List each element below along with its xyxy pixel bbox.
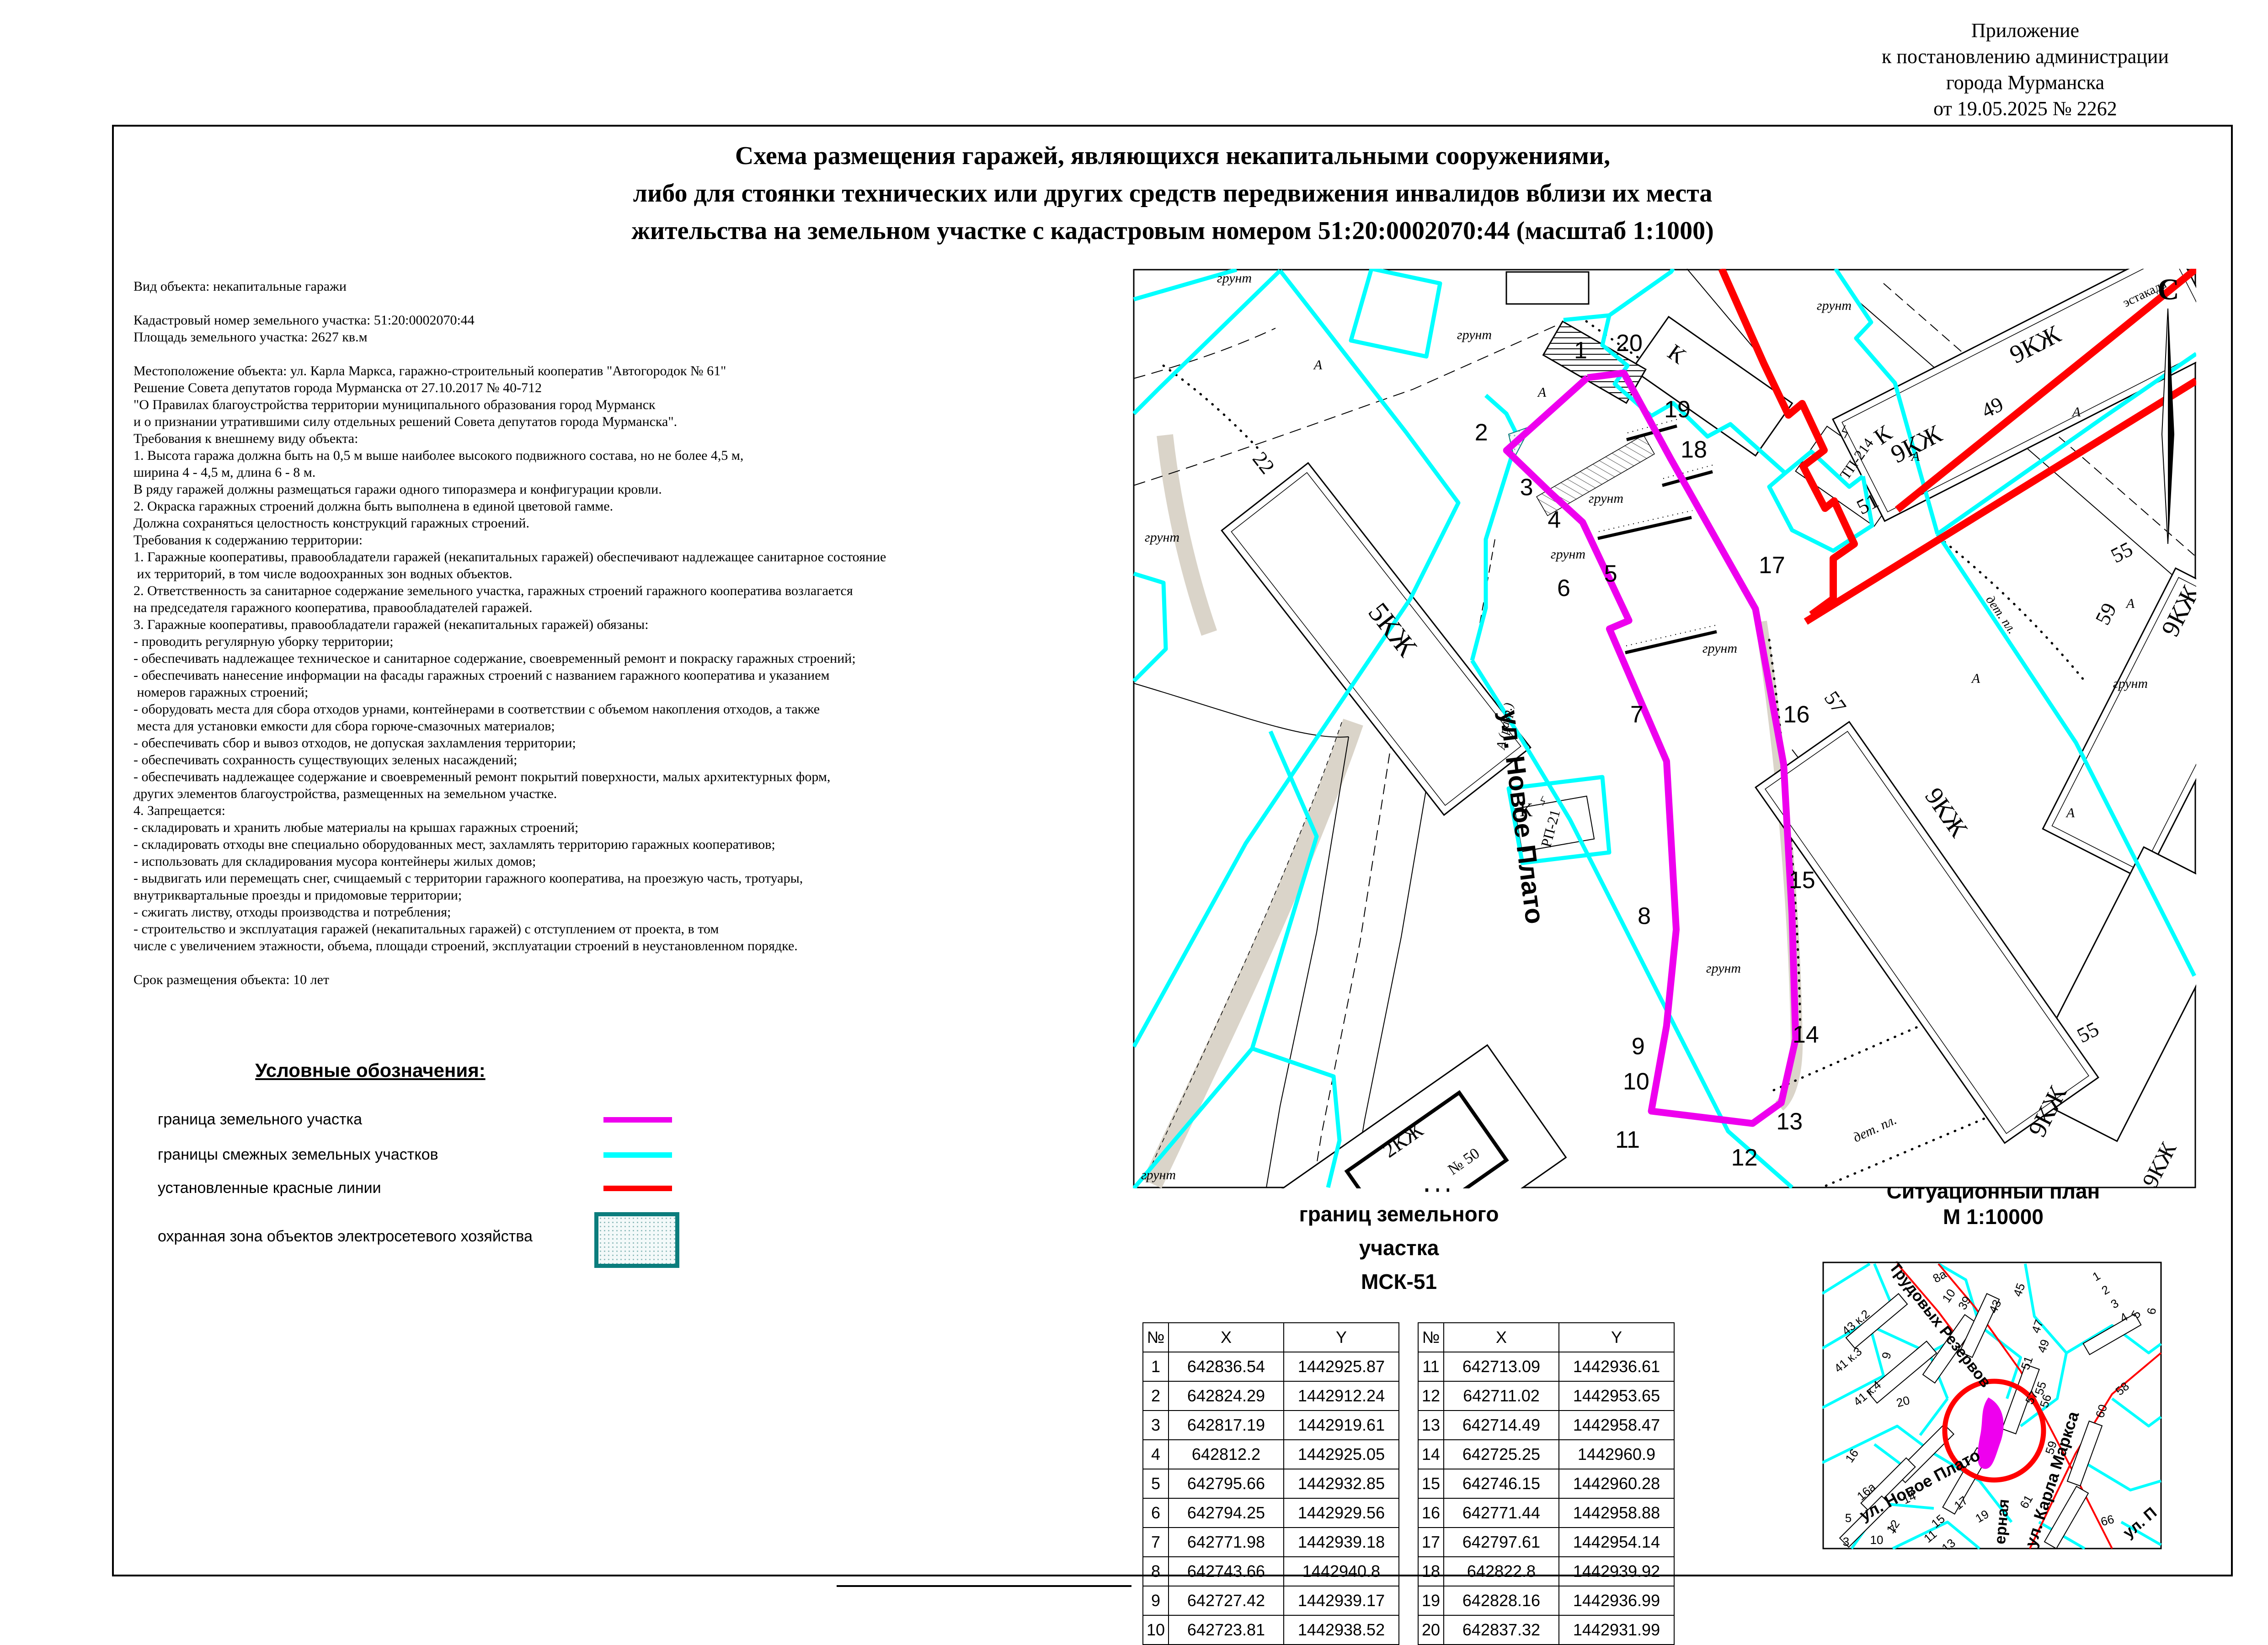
vertex-number: 13	[1776, 1108, 1803, 1135]
table-cell: 1442936.99	[1559, 1586, 1674, 1615]
map-label: грунт	[1217, 271, 1252, 286]
vertex-number: 15	[1789, 867, 1815, 894]
table-cell: 642723.81	[1169, 1615, 1284, 1645]
protection-zone-swatch	[594, 1212, 679, 1268]
info-line: на председателя гаражного кооператива, п…	[133, 599, 1121, 616]
table-cell: 20	[1418, 1615, 1444, 1645]
table-cell: 1442939.92	[1559, 1557, 1674, 1586]
info-line: 1. Высота гаража должна быть на 0,5 м вы…	[133, 447, 1121, 464]
info-line: 1. Гаражные кооперативы, правообладатели…	[133, 548, 1121, 565]
map-label: А	[1313, 357, 1323, 373]
info-line: Вид объекта: некапитальные гаражи	[133, 278, 1121, 295]
signature-line	[837, 1585, 1131, 1587]
table-cell: 14	[1418, 1440, 1444, 1469]
info-line: - сжигать листву, отходы производства и …	[133, 904, 1121, 921]
table-cell: 642711.02	[1444, 1381, 1559, 1411]
table-cell: 642771.44	[1444, 1498, 1559, 1528]
info-line: Срок размещения объекта: 10 лет	[133, 971, 1121, 988]
table-cell: 642746.15	[1444, 1469, 1559, 1498]
table-cell: 3	[1143, 1411, 1169, 1440]
table-cell: 1442912.24	[1284, 1381, 1399, 1411]
table-cell: 15	[1418, 1469, 1444, 1498]
column-header: №	[1143, 1323, 1169, 1352]
table-cell: 1442919.61	[1284, 1411, 1399, 1440]
info-line: - использовать для складирования мусора …	[133, 853, 1121, 870]
situational-plan-map: Трудовых Резервовул. Новое Платоул. Карл…	[1822, 1262, 2162, 1549]
table-cell: 1442958.47	[1559, 1411, 1674, 1440]
map-label: грунт	[1551, 547, 1585, 562]
map-label: грунт	[1817, 298, 1852, 313]
table-cell: 1442940.8	[1284, 1557, 1399, 1586]
table-cell: 642837.32	[1444, 1615, 1559, 1645]
vertex-number: 6	[1557, 575, 1570, 602]
info-line: - оборудовать места для сбора отходов ур…	[133, 701, 1121, 718]
table-cell: 1442960.28	[1559, 1469, 1674, 1498]
map-label: грунт	[2113, 676, 2148, 691]
info-line: Требования к содержанию территории:	[133, 532, 1121, 548]
vertex-number: 7	[1630, 701, 1644, 728]
info-line: "О Правилах благоустройства территории м…	[133, 396, 1121, 413]
vertex-number: 17	[1759, 552, 1785, 579]
info-line: - складировать отходы вне специально обо…	[133, 836, 1121, 853]
table-cell: 19	[1418, 1586, 1444, 1615]
vertex-number: 8	[1638, 903, 1651, 930]
page-title: Схема размещения гаражей, являющихся нек…	[137, 137, 2208, 250]
table-row: 10642723.811442938.52	[1143, 1615, 1399, 1645]
info-line: 4. Запрещается:	[133, 802, 1121, 819]
table-cell: 11	[1418, 1352, 1444, 1381]
table-row: 17642797.611442954.14	[1418, 1528, 1674, 1557]
table-cell: 1442929.56	[1284, 1498, 1399, 1528]
map-label: 3	[1843, 1535, 1849, 1549]
info-line: номеров гаражных строений;	[133, 684, 1121, 701]
map-label: грунт	[1702, 641, 1737, 656]
table-cell: 1442953.65	[1559, 1381, 1674, 1411]
table-cell: 642817.19	[1169, 1411, 1284, 1440]
appendix-line: от 19.05.2025 № 2262	[1783, 96, 2268, 122]
table-cell: 642828.16	[1444, 1586, 1559, 1615]
vertex-number: 18	[1681, 437, 1707, 463]
vertex-number: 9	[1632, 1033, 1645, 1060]
building-garage-row	[1506, 272, 1589, 304]
table-cell: 642771.98	[1169, 1528, 1284, 1557]
document-page: { "appendix": { "lines": ["Приложение","…	[0, 0, 2268, 1603]
vertex-number: 10	[1623, 1069, 1649, 1095]
vertex-number: 5	[1604, 561, 1617, 587]
table-cell: 1442938.52	[1284, 1615, 1399, 1645]
table-cell: 642714.49	[1444, 1411, 1559, 1440]
table-row: 13642714.491442958.47	[1418, 1411, 1674, 1440]
table-cell: 1442936.61	[1559, 1352, 1674, 1381]
table-row: 20642837.321442931.99	[1418, 1615, 1674, 1645]
info-line: В ряду гаражей должны размещаться гаражи…	[133, 481, 1121, 498]
map-label: А	[2071, 405, 2081, 420]
info-line: - обеспечивать сохранность существующих …	[133, 751, 1121, 768]
coordinates-title-line: участка	[1266, 1231, 1532, 1265]
info-line	[133, 954, 1121, 971]
info-line: - обеспечивать сбор и вывоз отходов, не …	[133, 735, 1121, 751]
table-row: 14642725.251442960.9	[1418, 1440, 1674, 1469]
table-cell: 17	[1418, 1528, 1444, 1557]
info-line: места для установки емкости для сбора го…	[133, 718, 1121, 735]
table-cell: 10	[1143, 1615, 1169, 1645]
table-row: 6642794.251442929.56	[1143, 1498, 1399, 1528]
table-cell: 9	[1143, 1586, 1169, 1615]
table-row: 8642743.661442940.8	[1143, 1557, 1399, 1586]
table-row: 19642828.161442936.99	[1418, 1586, 1674, 1615]
info-line: и о признании утратившими силу отдельных…	[133, 413, 1121, 430]
appendix-line: города Мурманска	[1783, 69, 2268, 96]
info-line: - обеспечивать надлежащее техническое и …	[133, 650, 1121, 667]
table-row: 18642822.81442939.92	[1418, 1557, 1674, 1586]
info-line: 2. Окраска гаражных строений должна быть…	[133, 498, 1121, 515]
table-row: 9642727.421442939.17	[1143, 1586, 1399, 1615]
table-cell: 4	[1143, 1440, 1169, 1469]
map-label: грунт	[1457, 327, 1492, 342]
table-row: 1642836.541442925.87	[1143, 1352, 1399, 1381]
legend-swatch-red-lines	[603, 1186, 672, 1191]
table-cell: 12	[1418, 1381, 1444, 1411]
main-map: грунтгрунтгрунтгрунтгрунтгрунтгрунтгрунт…	[1133, 269, 2196, 1188]
info-line: - обеспечивать надлежащее содержание и с…	[133, 768, 1121, 785]
info-line	[133, 346, 1121, 362]
info-line: внутриквартальные проезды и придомовые т…	[133, 887, 1121, 904]
info-line: - обеспечивать нанесение информации на ф…	[133, 667, 1121, 684]
table-cell: 13	[1418, 1411, 1444, 1440]
table-row: 3642817.191442919.61	[1143, 1411, 1399, 1440]
appendix-line: Приложение	[1783, 17, 2268, 43]
vertex-number: 2	[1475, 419, 1488, 446]
table-cell: 642822.8	[1444, 1557, 1559, 1586]
vertex-number: 1	[1574, 337, 1587, 364]
info-line: Решение Совета депутатов города Мурманск…	[133, 379, 1121, 396]
table-row: 7642771.981442939.18	[1143, 1528, 1399, 1557]
table-cell: 1442939.17	[1284, 1586, 1399, 1615]
table-cell: 1442939.18	[1284, 1528, 1399, 1557]
vertex-number: 11	[1615, 1127, 1640, 1153]
info-line: числе с увеличением этажности, объема, п…	[133, 937, 1121, 954]
table-row: 11642713.091442936.61	[1418, 1352, 1674, 1381]
map-label: А	[2125, 596, 2135, 611]
vertex-number: 3	[1520, 474, 1533, 501]
vertex-number: 4	[1548, 507, 1561, 533]
map-label: А	[1971, 671, 1980, 686]
table-cell: 642727.42	[1169, 1586, 1284, 1615]
title-line: Схема размещения гаражей, являющихся нек…	[137, 137, 2208, 175]
table-row: 16642771.441442958.88	[1418, 1498, 1674, 1528]
legend-swatch-parcel-boundary	[603, 1117, 672, 1123]
coordinates-table-1: №XY1642836.541442925.872642824.291442912…	[1142, 1322, 1399, 1645]
table-cell: 1442958.88	[1559, 1498, 1674, 1528]
info-line: 3. Гаражные кооперативы, правообладатели…	[133, 616, 1121, 633]
table-row: 12642711.021442953.65	[1418, 1381, 1674, 1411]
info-line: ширина 4 - 4,5 м, длина 6 - 8 м.	[133, 464, 1121, 481]
map-label: А	[2065, 805, 2075, 820]
map-label: грунт	[1706, 961, 1741, 976]
table-cell: 18	[1418, 1557, 1444, 1586]
object-info-text: Вид объекта: некапитальные гаражи Кадаст…	[133, 278, 1121, 988]
info-line: 2. Ответственность за санитарное содержа…	[133, 582, 1121, 599]
map-label: грунт	[1589, 491, 1623, 506]
map-label: грунт	[1141, 1167, 1176, 1182]
table-cell: 7	[1143, 1528, 1169, 1557]
info-line: Требования к внешнему виду объекта:	[133, 430, 1121, 447]
table-cell: 5	[1143, 1469, 1169, 1498]
table-cell: 1442954.14	[1559, 1528, 1674, 1557]
table-cell: 1442925.05	[1284, 1440, 1399, 1469]
column-header: Y	[1284, 1323, 1399, 1352]
info-line: их территорий, в том числе водоохранных …	[133, 565, 1121, 582]
table-cell: 1442925.87	[1284, 1352, 1399, 1381]
table-cell: 642725.25	[1444, 1440, 1559, 1469]
table-cell: 642795.66	[1169, 1469, 1284, 1498]
table-row: 5642795.661442932.85	[1143, 1469, 1399, 1498]
column-header: Y	[1559, 1323, 1674, 1352]
table-cell: 642836.54	[1169, 1352, 1284, 1381]
info-line: - проводить регулярную уборку территории…	[133, 633, 1121, 650]
table-cell: 642812.2	[1169, 1440, 1284, 1469]
title-line: жительства на земельном участке с кадаст…	[137, 212, 2208, 250]
vertex-number: 12	[1731, 1145, 1758, 1171]
table-row: 15642746.151442960.28	[1418, 1469, 1674, 1498]
appendix-line: к постановлению администрации	[1783, 43, 2268, 69]
table-cell: 642824.29	[1169, 1381, 1284, 1411]
info-line: - складировать и хранить любые материалы…	[133, 819, 1121, 836]
column-header: X	[1169, 1323, 1284, 1352]
info-line: Местоположение объекта: ул. Карла Маркса…	[133, 362, 1121, 379]
legend-label-adjacent-boundaries: границы смежных земельных участков	[158, 1146, 615, 1164]
vertex-number: 20	[1616, 330, 1643, 357]
table-cell: 642794.25	[1169, 1498, 1284, 1528]
coordinates-title-line: границ земельного	[1266, 1197, 1532, 1231]
legend-label-protection-zone: охранная зона объектов электросетевого х…	[158, 1228, 615, 1246]
vertex-number: 14	[1793, 1022, 1819, 1048]
info-line: - выдвигать или перемещать снег, счищаем…	[133, 870, 1121, 887]
info-line: других элементов благоустройства, размещ…	[133, 785, 1121, 802]
map-label: 5	[1845, 1511, 1852, 1525]
table-cell: 642797.61	[1444, 1528, 1559, 1557]
table-cell: 2	[1143, 1381, 1169, 1411]
info-line	[133, 295, 1121, 312]
appendix-block: Приложениек постановлению администрацииг…	[1783, 17, 2268, 122]
table-cell: 642743.66	[1169, 1557, 1284, 1586]
column-header: №	[1418, 1323, 1444, 1352]
legend-label-red-lines: установленные красные линии	[158, 1179, 615, 1197]
map-label: 10	[1870, 1533, 1884, 1547]
situational-plan-title-line: М 1:10000	[1856, 1204, 2130, 1230]
vertex-number: 19	[1664, 396, 1691, 423]
legend-title: Условные обозначения:	[197, 1059, 544, 1081]
info-line: Должна сохраняться целостность конструкц…	[133, 515, 1121, 532]
table-cell: 1442932.85	[1284, 1469, 1399, 1498]
legend-swatch-adjacent-boundaries	[603, 1152, 672, 1158]
table-cell: 8	[1143, 1557, 1169, 1586]
table-cell: 642713.09	[1444, 1352, 1559, 1381]
info-line: Площадь земельного участка: 2627 кв.м	[133, 329, 1121, 346]
coordinates-title-line: МСК-51	[1266, 1265, 1532, 1299]
map-label: грунт	[1145, 530, 1179, 545]
title-line: либо для стоянки технических или других …	[137, 175, 2208, 212]
table-cell: 1442960.9	[1559, 1440, 1674, 1469]
coordinates-table-2: №XY11642713.091442936.6112642711.0214429…	[1418, 1322, 1675, 1645]
table-row: 4642812.21442925.05	[1143, 1440, 1399, 1469]
table-cell: 6	[1143, 1498, 1169, 1528]
table-cell: 16	[1418, 1498, 1444, 1528]
table-row: 2642824.291442912.24	[1143, 1381, 1399, 1411]
column-header: X	[1444, 1323, 1559, 1352]
info-line: Кадастровый номер земельного участка: 51…	[133, 312, 1121, 329]
map-label: А	[1537, 385, 1547, 400]
info-line: - строительство и эксплуатация гаражей (…	[133, 921, 1121, 937]
table-cell: 1442931.99	[1559, 1615, 1674, 1645]
vertex-number: 16	[1783, 701, 1810, 728]
legend-label-parcel-boundary: граница земельного участка	[158, 1111, 615, 1129]
table-cell: 1	[1143, 1352, 1169, 1381]
